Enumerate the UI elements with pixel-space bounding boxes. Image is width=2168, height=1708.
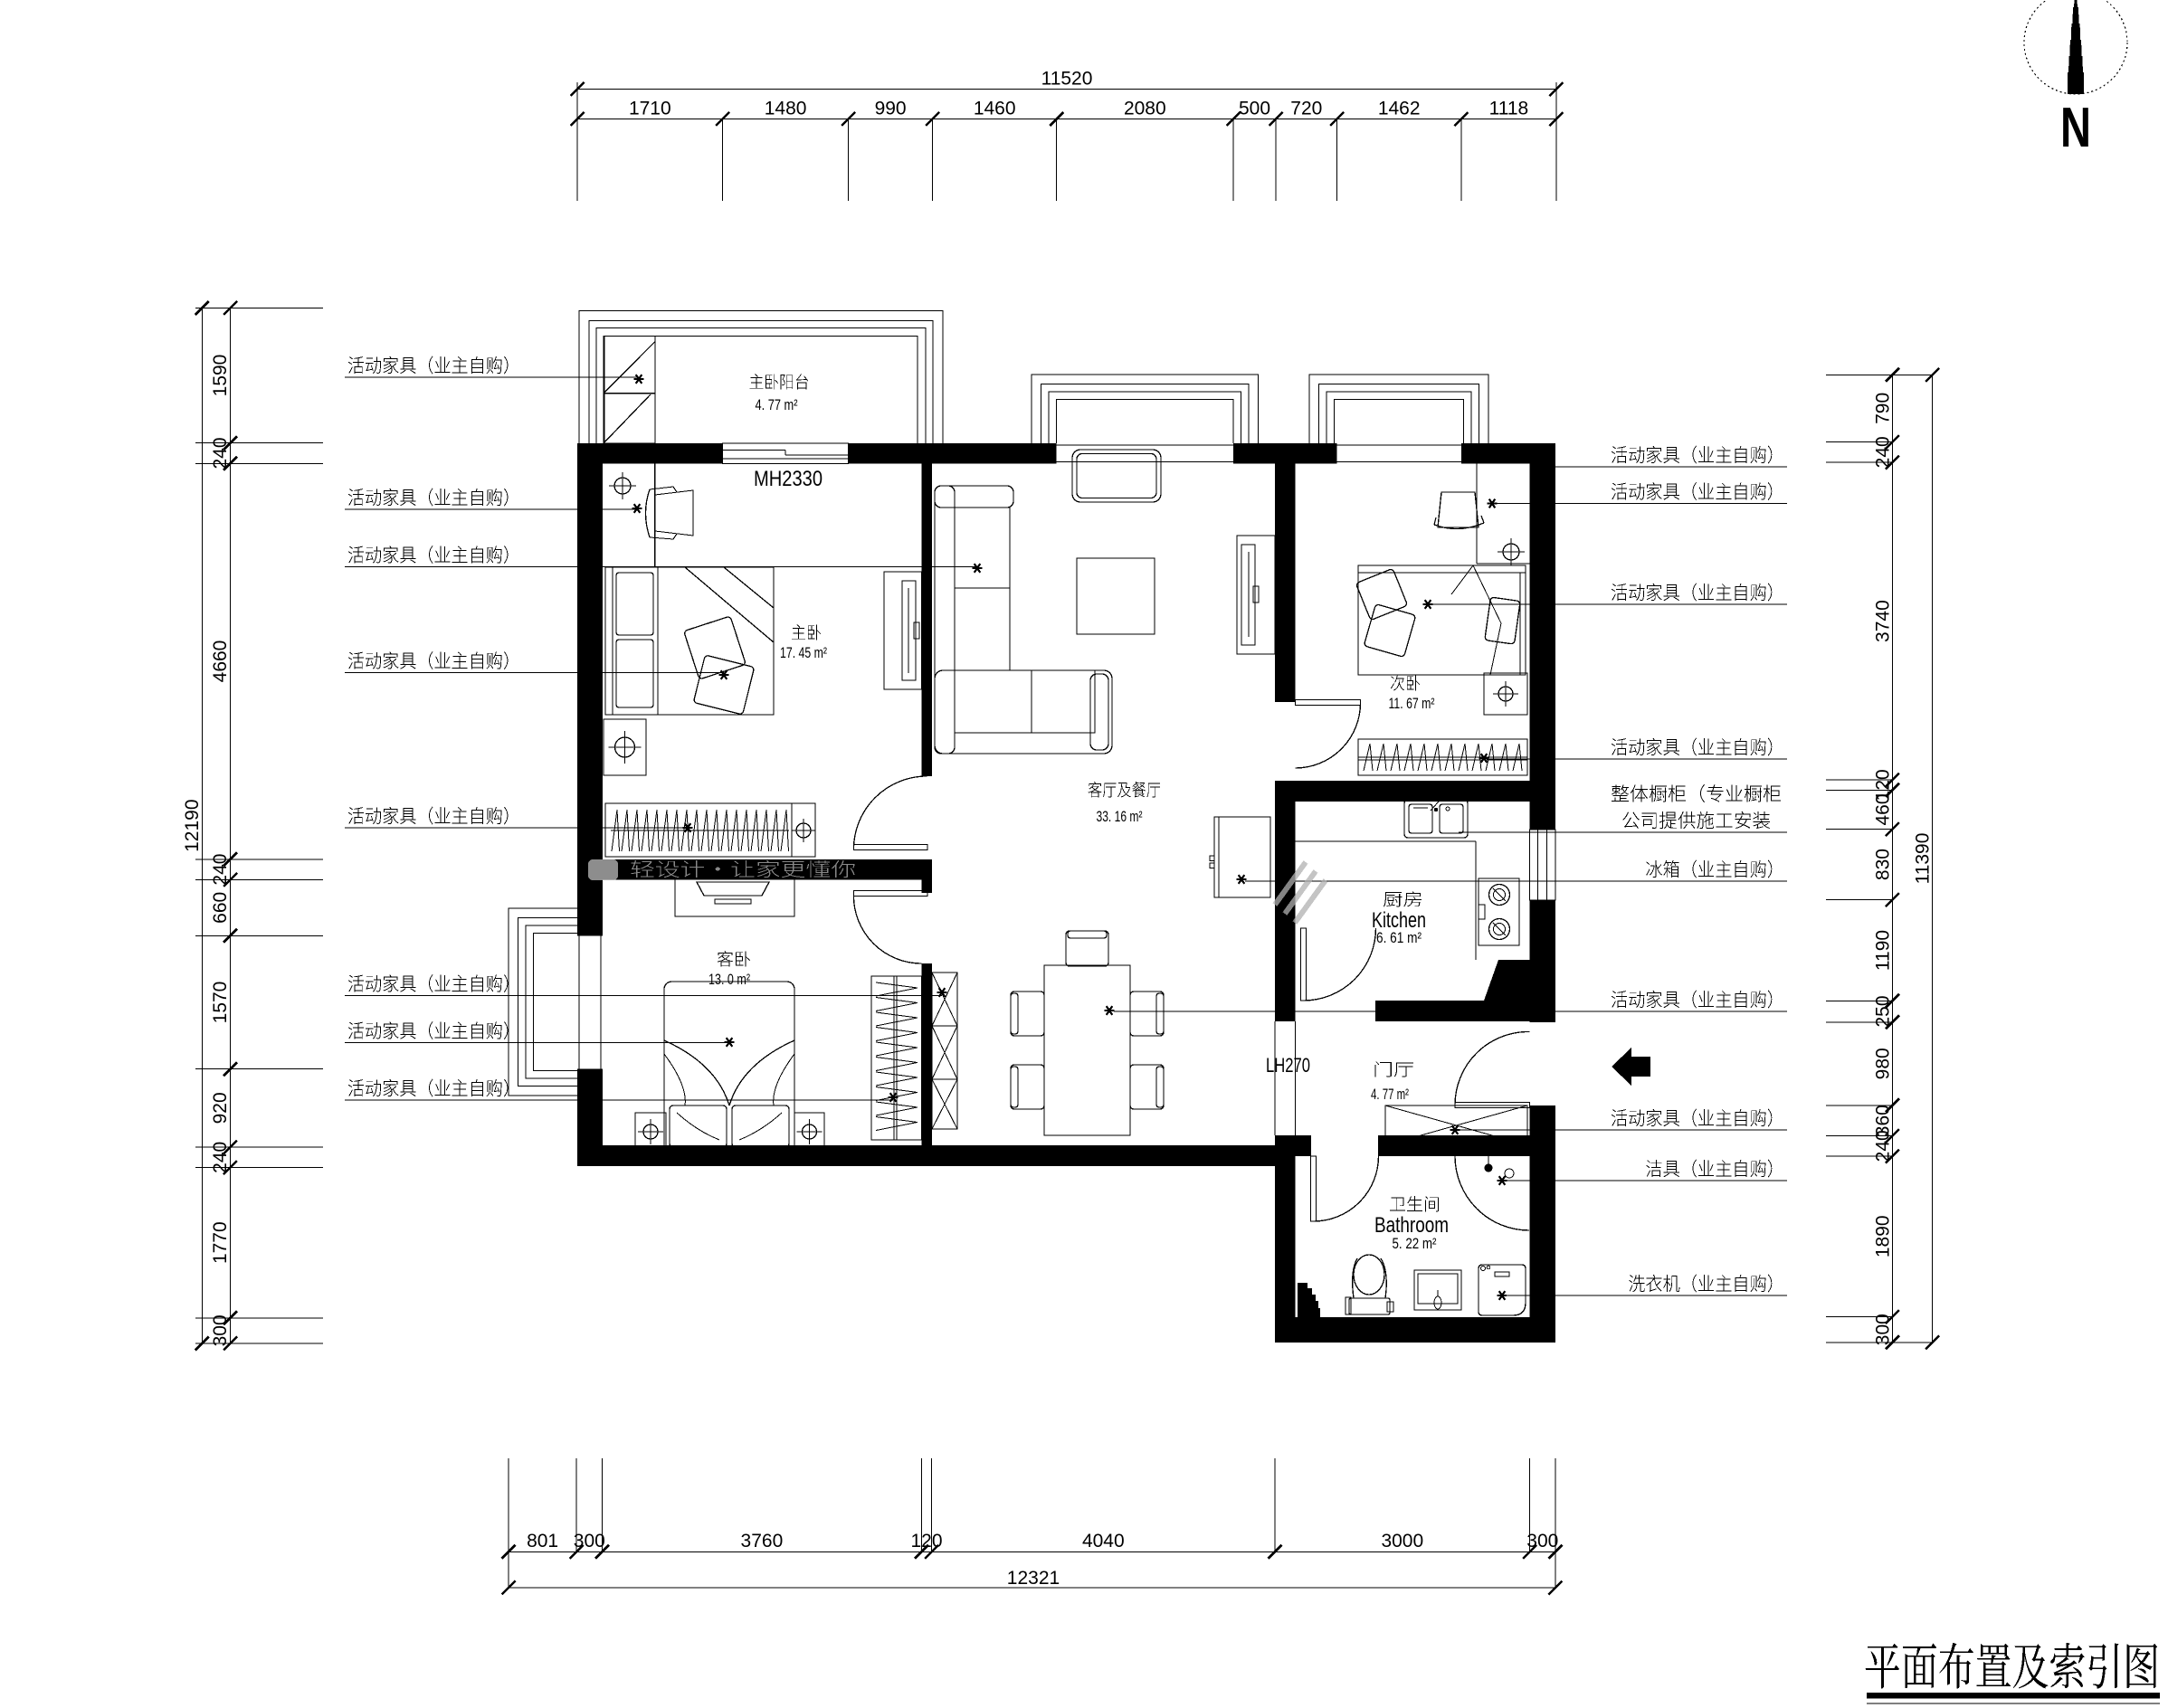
- svg-text:1770: 1770: [210, 1221, 231, 1264]
- svg-text:240: 240: [210, 854, 231, 886]
- svg-text:980: 980: [1872, 1048, 1893, 1079]
- svg-text:790: 790: [1872, 393, 1893, 424]
- svg-text:11520: 11520: [1041, 69, 1093, 90]
- svg-text:12190: 12190: [182, 799, 203, 851]
- svg-text:MH2330: MH2330: [754, 467, 823, 491]
- svg-text:240: 240: [1872, 436, 1893, 468]
- svg-text:Bathroom: Bathroom: [1374, 1213, 1449, 1238]
- svg-text:3740: 3740: [1872, 600, 1893, 642]
- svg-text:1462: 1462: [1378, 99, 1421, 119]
- svg-text:13. 0 m²: 13. 0 m²: [708, 971, 750, 988]
- svg-text:460: 460: [1872, 793, 1893, 825]
- svg-text:1118: 1118: [1489, 99, 1529, 119]
- svg-text:1890: 1890: [1872, 1215, 1893, 1257]
- svg-text:300: 300: [1872, 1314, 1893, 1345]
- svg-text:1480: 1480: [765, 99, 807, 119]
- svg-text:6. 61 m²: 6. 61 m²: [1376, 929, 1422, 946]
- svg-text:300: 300: [574, 1531, 605, 1551]
- svg-text:830: 830: [1872, 849, 1893, 880]
- svg-text:4660: 4660: [210, 640, 231, 683]
- svg-text:1460: 1460: [974, 99, 1016, 119]
- svg-text:300: 300: [210, 1314, 231, 1346]
- svg-text:240: 240: [210, 1142, 231, 1173]
- svg-text:500: 500: [1239, 99, 1270, 119]
- svg-text:3000: 3000: [1381, 1531, 1423, 1551]
- svg-text:240: 240: [1872, 1130, 1893, 1162]
- svg-text:11390: 11390: [1913, 833, 1934, 885]
- svg-text:3760: 3760: [741, 1531, 784, 1551]
- svg-text:17. 45 m²: 17. 45 m²: [780, 644, 827, 661]
- svg-text:1590: 1590: [210, 355, 231, 397]
- svg-text:720: 720: [1290, 99, 1322, 119]
- svg-text:N: N: [2060, 97, 2091, 159]
- svg-text:4040: 4040: [1082, 1531, 1125, 1551]
- svg-text:660: 660: [210, 892, 231, 924]
- svg-text:120: 120: [910, 1531, 942, 1551]
- svg-text:11. 67 m²: 11. 67 m²: [1389, 695, 1435, 712]
- svg-text:801: 801: [527, 1531, 558, 1551]
- svg-text:33. 16 m²: 33. 16 m²: [1097, 808, 1143, 825]
- svg-text:LH270: LH270: [1266, 1054, 1310, 1077]
- svg-text:12321: 12321: [1007, 1568, 1060, 1589]
- svg-text:2080: 2080: [1124, 99, 1166, 119]
- svg-text:1710: 1710: [629, 99, 671, 119]
- svg-text:1570: 1570: [210, 982, 231, 1024]
- svg-text:240: 240: [210, 437, 231, 469]
- svg-text:4. 77 m²: 4. 77 m²: [1371, 1086, 1409, 1103]
- svg-text:920: 920: [210, 1092, 231, 1124]
- svg-text:250: 250: [1872, 995, 1893, 1027]
- svg-text:1190: 1190: [1872, 930, 1893, 971]
- svg-text:4. 77 m²: 4. 77 m²: [756, 396, 798, 413]
- svg-text:300: 300: [1526, 1531, 1558, 1551]
- svg-text:990: 990: [875, 99, 907, 119]
- svg-text:5. 22 m²: 5. 22 m²: [1393, 1235, 1437, 1252]
